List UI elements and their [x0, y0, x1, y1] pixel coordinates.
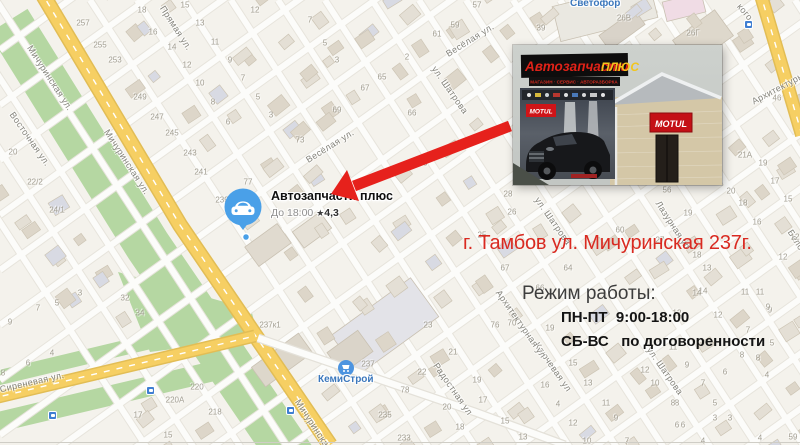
- building: [148, 70, 160, 82]
- brand-logos: [527, 93, 605, 97]
- building: [755, 184, 770, 200]
- sign-accent-text: ПЛЮС: [601, 60, 639, 74]
- building: [48, 195, 70, 216]
- schedule-weekend: СБ-ВС по договоренности: [561, 333, 765, 350]
- building: [775, 217, 793, 235]
- building: [0, 184, 9, 202]
- building: [227, 109, 241, 123]
- address-annotation: г. Тамбов ул. Мичуринская 237г.: [463, 232, 752, 255]
- building: [704, 268, 722, 286]
- building: [757, 351, 773, 368]
- building: [383, 0, 402, 9]
- building: [480, 0, 498, 3]
- building: [317, 327, 335, 345]
- building: [446, 230, 462, 246]
- storefront-photo: MOTUL Автозапчасти ПЛЮС МАГАЗИН · СЕРВИС…: [513, 45, 722, 185]
- building: [199, 134, 216, 151]
- building: [500, 24, 515, 39]
- building: [694, 383, 710, 399]
- building: [434, 290, 452, 309]
- building: [509, 308, 523, 322]
- building: [253, 0, 270, 6]
- building: [715, 420, 731, 436]
- map-pin-avtozapchasti[interactable]: [219, 183, 279, 245]
- car-billboard: MOTUL: [520, 88, 615, 180]
- building: [161, 0, 176, 14]
- building: [141, 397, 157, 413]
- building: [469, 118, 483, 131]
- building: [579, 425, 596, 441]
- building: [407, 94, 421, 108]
- motul-wall-text: MOTUL: [655, 119, 687, 129]
- building: [348, 421, 361, 434]
- poi-svetofor[interactable]: Светофор: [570, 0, 620, 9]
- motul-banner-text: MOTUL: [529, 109, 552, 116]
- building: [136, 410, 154, 427]
- building: [786, 382, 800, 396]
- building: [605, 404, 623, 421]
- map-bottom-divider: [0, 442, 800, 443]
- building: [430, 349, 450, 368]
- building: [625, 437, 639, 445]
- building: [488, 363, 502, 377]
- building: [649, 28, 662, 41]
- building: [322, 384, 340, 401]
- building: [267, 95, 289, 117]
- pin-title[interactable]: Автозапчасти плюс: [271, 189, 393, 203]
- building: [716, 206, 737, 226]
- building: [762, 130, 779, 147]
- map-screenshot: Мичуринская ул.Мичуринская ул.Мичуринска…: [0, 0, 800, 445]
- building: [392, 63, 408, 80]
- building: [463, 176, 477, 190]
- building: [298, 286, 314, 302]
- building: [278, 34, 294, 50]
- building: [411, 39, 429, 58]
- pin-hours: До 18:00: [271, 207, 313, 219]
- building: [425, 254, 441, 270]
- building: [630, 368, 646, 385]
- building: [662, 0, 706, 22]
- location-dot: [243, 234, 250, 241]
- building: [754, 403, 772, 420]
- building: [74, 233, 87, 245]
- building: [730, 309, 750, 328]
- building: [339, 208, 356, 224]
- building: [182, 105, 201, 123]
- building: [579, 360, 599, 378]
- poi-kemistroy[interactable]: КемиСтрой: [318, 374, 374, 385]
- building: [209, 85, 228, 104]
- building: [424, 421, 441, 438]
- schedule-heading: Режим работы:: [522, 283, 656, 305]
- building: [195, 422, 214, 439]
- pin-rating: 4,3: [324, 207, 339, 219]
- building: [311, 11, 329, 29]
- pin-subtitle: До 18:00 ★4,3: [271, 207, 339, 219]
- schedule-weekdays: ПН-ПТ 9:00-18:00: [561, 309, 689, 326]
- building: [441, 140, 461, 158]
- sign-sub-text: МАГАЗИН · СЕРВИС · АВТОРАЗБОРКА: [530, 80, 618, 85]
- building: [328, 40, 344, 55]
